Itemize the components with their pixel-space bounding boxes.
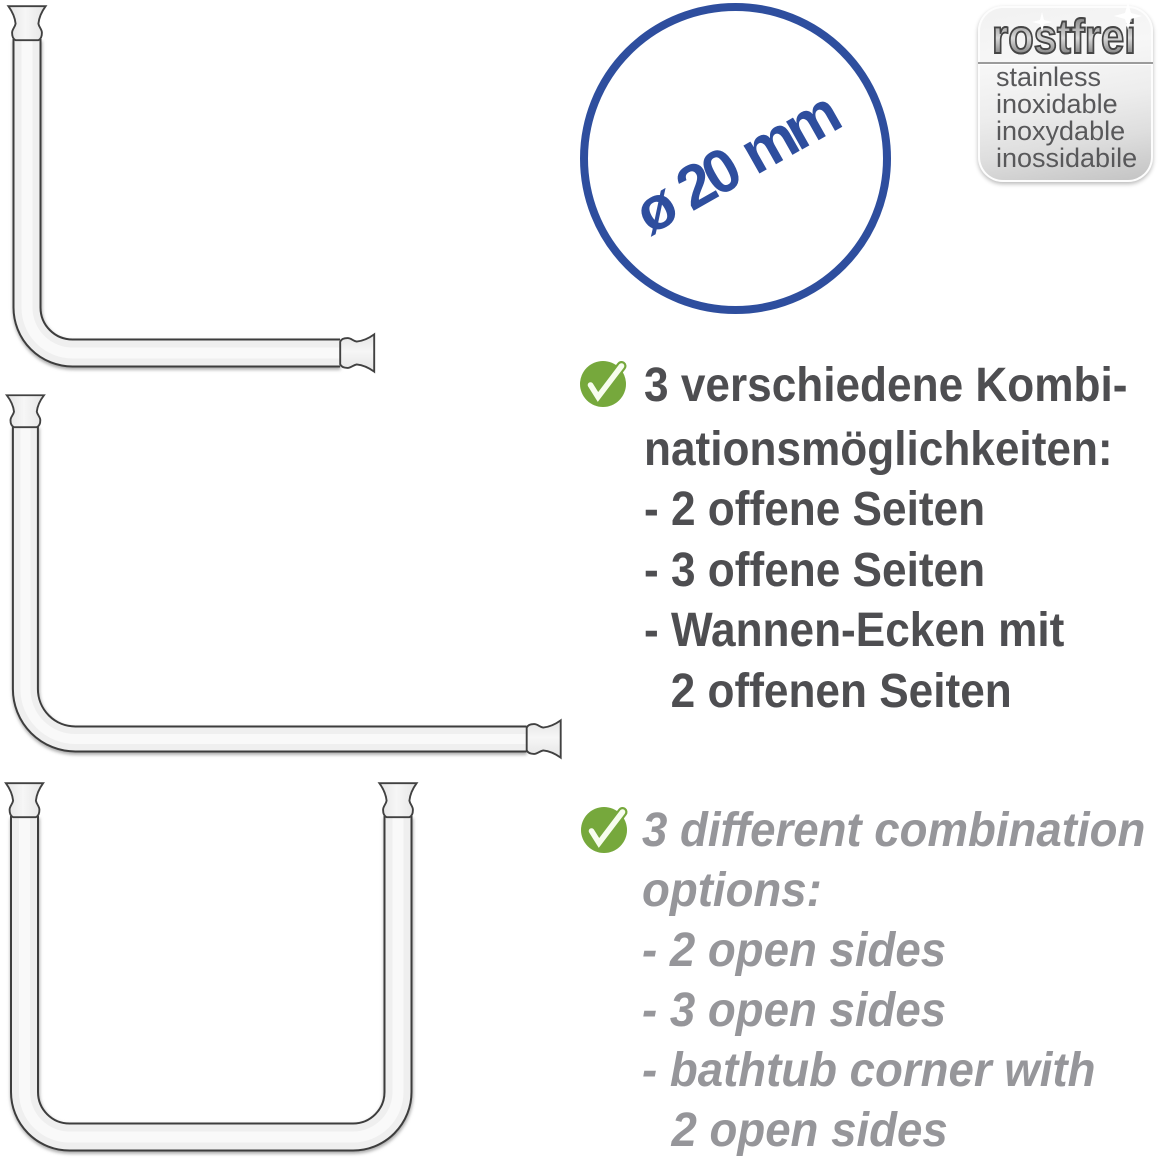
svg-text:ø 20 mm: ø 20 mm bbox=[623, 79, 849, 247]
